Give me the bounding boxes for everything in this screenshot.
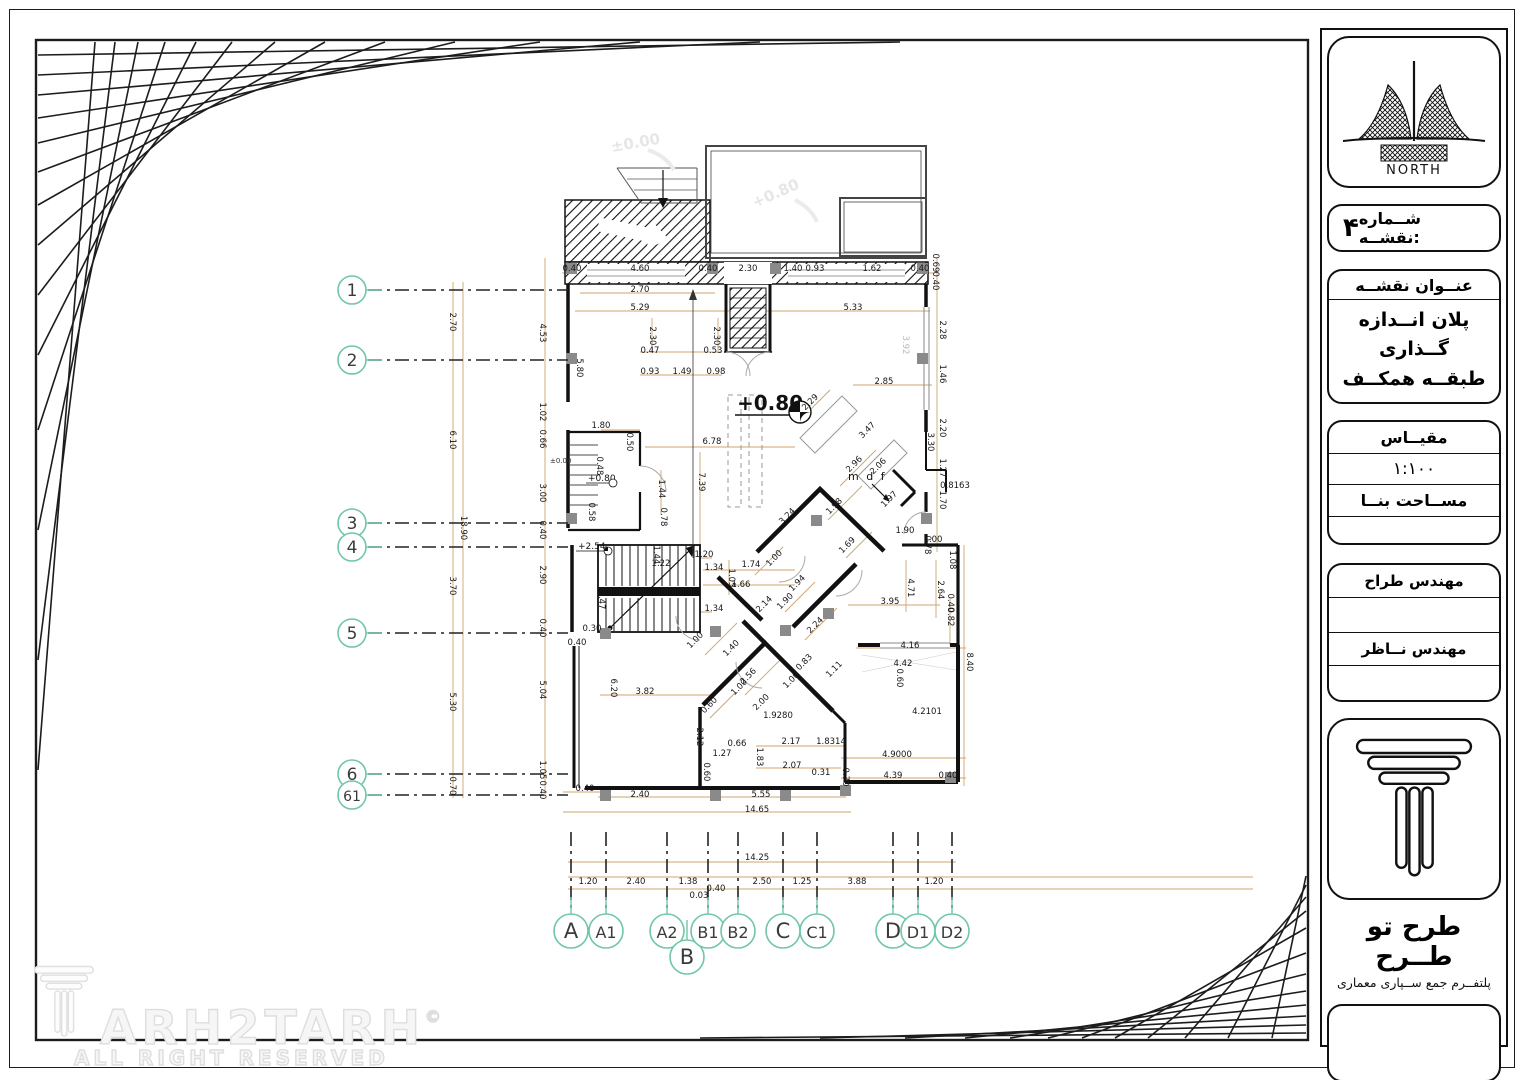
svg-text:B2: B2: [727, 923, 748, 942]
dimension-label: 0.8163: [940, 481, 970, 491]
dimension-label: 0.98: [707, 367, 726, 377]
svg-text:A: A: [564, 919, 579, 943]
scale-value: ۱:۱۰۰: [1329, 454, 1499, 485]
dimension-label: 1.46: [937, 365, 947, 384]
dimension-label: 1.66: [732, 580, 751, 590]
dimension-label: 1.90: [896, 526, 915, 536]
designer-value-empty: [1329, 598, 1499, 633]
dimension-labels: 0.404.600.402.301.400.931.620.400.690.40…: [447, 254, 974, 901]
dimension-label: 0.83: [794, 652, 814, 672]
svg-text:C: C: [776, 919, 791, 943]
courtyard-outline: [706, 146, 926, 258]
supervisor-label: مهندس نــاظر: [1329, 633, 1499, 666]
dimension-label: 1.8314: [816, 737, 846, 747]
dimension-label: 1.62: [863, 264, 882, 274]
level-stair: +2.54: [578, 542, 606, 552]
dimension-label: 0.40: [537, 521, 547, 540]
dimension-label: 4.42: [894, 659, 913, 669]
dimension-label: 0.93: [806, 264, 825, 274]
staircase: [598, 545, 700, 632]
dimension-label: 1.34: [705, 604, 724, 614]
dimension-label: 0.40: [563, 264, 582, 274]
north-indicator: NORTH: [1327, 36, 1501, 188]
grid-axis-A2: A2: [650, 832, 684, 948]
dimension-label: 1.11: [824, 659, 844, 679]
dimension-label: 1.02: [537, 403, 547, 422]
dimension-label: 2.40: [627, 877, 646, 887]
dimension-label: 0.66: [537, 430, 547, 449]
grid-axis-C: C: [766, 832, 800, 948]
dimension-label: 6.78: [703, 437, 722, 447]
dimension-label: 0.70: [447, 777, 457, 796]
dimension-label: 0.78: [658, 508, 668, 527]
dimension-label: 3.47: [857, 420, 877, 440]
dimension-label: 1.80: [592, 421, 611, 431]
dimension-label: 1.44: [656, 480, 666, 499]
dimension-label: 0.53: [704, 346, 723, 356]
dimension-label: 8.40: [964, 653, 974, 672]
dimension-label: 2.30: [739, 264, 758, 274]
dimension-label: 14.65: [745, 805, 769, 815]
dimension-label: 1.74: [742, 560, 761, 570]
svg-text:2: 2: [347, 351, 358, 371]
dimension-label: 5.04: [537, 681, 547, 700]
map-title-label: عنــوان نقشــه: [1329, 271, 1499, 300]
dimension-label: 0.40: [930, 272, 940, 291]
dimension-label: 2.14: [754, 594, 774, 614]
dimension-label: 4.53: [537, 324, 547, 343]
map-title-line2: طبقــه همکــف: [1331, 365, 1497, 394]
grid-axis-D2: D2: [935, 832, 969, 948]
svg-text:D: D: [885, 919, 901, 943]
svg-text:B1: B1: [697, 923, 718, 942]
dimension-label: 2.07: [783, 761, 802, 771]
dimension-label: 0.40: [576, 784, 595, 794]
dimension-label: 0.48: [594, 457, 604, 476]
dimension-label: 0.40: [568, 638, 587, 648]
section-line: [689, 289, 697, 558]
scale-label: مقیــاس: [1329, 422, 1499, 454]
svg-text:B: B: [680, 945, 694, 969]
svg-text:3: 3: [347, 514, 358, 534]
dimension-label: 1.00: [685, 630, 705, 650]
hatched-walls: [565, 200, 928, 348]
map-title-box: عنــوان نقشــه پلان انــدازه گــذاری طبق…: [1327, 269, 1501, 404]
brand-subtitle: پلتفــرم جمع ســپاری معماری: [1327, 975, 1501, 990]
grid-axis-A1: A1: [589, 832, 623, 948]
dimension-label: 3.88: [848, 877, 867, 887]
dimension-label: 1.27: [713, 749, 732, 759]
column-logo-icon: [1344, 730, 1484, 888]
dimension-label: 4.39: [884, 771, 903, 781]
dimension-label: 0.70: [840, 768, 850, 787]
svg-text:5: 5: [347, 624, 358, 644]
dimension-label: 1.94: [787, 573, 807, 593]
north-label: NORTH: [1386, 163, 1442, 178]
grid-axis-B2: B2: [721, 832, 755, 948]
dimension-label: 0.40: [537, 781, 547, 800]
dimension-label: 6.20: [608, 679, 618, 698]
dimension-label: 4.60: [631, 264, 650, 274]
dimension-label: 2.12: [694, 728, 704, 747]
area-value-empty: [1329, 517, 1499, 543]
dimension-label: 1.69: [837, 535, 857, 555]
dimension-label: 1.00: [764, 548, 784, 568]
grid-axis-C1: C1: [800, 832, 834, 948]
dimension-label: 4.16: [901, 641, 920, 651]
dimension-label: 1.44: [651, 546, 661, 565]
dimension-label: 0.40: [537, 619, 547, 638]
dimension-label: 0.47: [641, 346, 660, 356]
dimension-label: 1.40: [784, 264, 803, 274]
svg-text:61: 61: [343, 789, 361, 805]
dimension-label: 5.55: [752, 790, 771, 800]
notes-box-empty: [1327, 1004, 1501, 1080]
dimension-label: 3.70: [447, 577, 457, 596]
dimension-label: 2.28: [937, 321, 947, 340]
dimension-label: 1.47: [596, 591, 606, 610]
dimension-label: 4.71: [905, 579, 915, 598]
dimension-label: 0.31: [812, 768, 831, 778]
dimension-label: 0.66: [728, 739, 747, 749]
dimension-label: 1.08: [947, 551, 957, 570]
scale-box: مقیــاس ۱:۱۰۰ مســاحت بنــا: [1327, 420, 1501, 545]
dimension-label: 1.20: [925, 877, 944, 887]
floor-plan-drawing: +0.80 +2.54 +0.80 ±0.00 ±0.00 +0.80 m d …: [0, 0, 1528, 1080]
dimension-label: 3.82: [636, 687, 655, 697]
dimension-label: 1.34: [705, 563, 724, 573]
north-icon: [1335, 55, 1493, 167]
dimension-label: 2.40: [631, 790, 650, 800]
dimension-label: 0.50: [624, 433, 634, 452]
faint-level-annotation: +0.80: [749, 175, 802, 212]
dimension-label: 0.40: [699, 264, 718, 274]
dimension-label: 0.30: [583, 624, 602, 634]
sheet-number-label: شــماره نقشــه:: [1359, 209, 1485, 247]
dimension-label: 0.40: [939, 771, 958, 781]
dimension-label: 1.90: [775, 591, 795, 611]
dimension-label: 5.80: [574, 359, 584, 378]
sheet-number-box: ۴ شــماره نقشــه:: [1327, 204, 1501, 252]
grid-axis-D1: D1: [901, 832, 935, 948]
dimension-label: 0.40: [945, 594, 955, 613]
dimension-label: 4.9000: [882, 750, 912, 760]
dimension-label: 2.30: [711, 327, 721, 346]
sheet-number-value: ۴: [1343, 213, 1359, 243]
dimension-label: 2.30: [647, 327, 657, 346]
dimension-label: 14.25: [745, 853, 769, 863]
dimension-label: 1.40: [721, 638, 741, 658]
level-zero: ±0.00: [550, 457, 571, 465]
dimension-label: 1.05: [537, 761, 547, 780]
area-label: مســاحت بنــا: [1329, 485, 1499, 517]
dimension-label: 3.30: [925, 433, 935, 452]
dimension-label: 1.00: [781, 670, 801, 690]
engineers-box: مهندس طراح مهندس نــاظر: [1327, 563, 1501, 702]
svg-text:C1: C1: [806, 923, 827, 942]
dimension-label: 0.93: [641, 367, 660, 377]
dimension-label: 7.39: [696, 473, 706, 492]
dimension-label: 2.00: [751, 692, 771, 712]
dimension-label: 2.17: [782, 737, 801, 747]
map-title-line1: پلان انــدازه گــذاری: [1331, 306, 1497, 365]
dimension-label: 1.20: [695, 550, 714, 560]
dimension-label: 6.10: [447, 431, 457, 450]
dimension-label: 0.60: [894, 669, 904, 688]
svg-text:4: 4: [347, 538, 358, 558]
dimension-label: 3.92: [900, 336, 910, 355]
brand-logo-box: [1327, 718, 1501, 900]
dimension-label: 5.30: [447, 693, 457, 712]
dimension-label: 0.58: [586, 503, 596, 522]
supervisor-value-empty: [1329, 666, 1499, 700]
dimension-label: 1.38: [679, 877, 698, 887]
dimension-label: 0.69: [930, 254, 940, 273]
dimension-label: 2.50: [753, 877, 772, 887]
dimension-label: 2.64: [935, 581, 945, 600]
dimension-label: 18.90: [458, 516, 468, 540]
dimension-label: 2.70: [631, 285, 650, 295]
dimension-label: 1.97: [879, 489, 899, 509]
dimension-label: 2.85: [875, 377, 894, 387]
dimension-label: 2.24: [805, 615, 825, 635]
designer-label: مهندس طراح: [1329, 565, 1499, 598]
svg-text:A1: A1: [595, 923, 616, 942]
dimension-label: 1.27: [937, 459, 947, 478]
dimension-label: 1.83: [754, 748, 764, 767]
dimension-label: 0.60: [701, 763, 711, 782]
dimension-label: 1.00: [924, 535, 943, 545]
dimension-label: 1.70: [937, 491, 947, 510]
dimension-label: 1.25: [793, 877, 812, 887]
dimension-label: 2.20: [937, 419, 947, 438]
dimension-label: 2.90: [537, 566, 547, 585]
dimension-label: 0.60: [699, 695, 719, 715]
title-block: NORTH ۴ شــماره نقشــه: عنــوان نقشــه پ…: [1320, 28, 1508, 1047]
dimension-label: 3.00: [537, 484, 547, 503]
dimension-label: 1.20: [579, 877, 598, 887]
svg-text:D1: D1: [907, 923, 930, 942]
brand-name: طرح تو طــرح: [1327, 912, 1501, 972]
svg-text:1: 1: [347, 281, 358, 301]
drawing-sheet: +0.80 +2.54 +0.80 ±0.00 ±0.00 +0.80 m d …: [0, 0, 1528, 1080]
svg-text:A2: A2: [656, 923, 677, 942]
svg-text:D2: D2: [941, 923, 964, 942]
dimension-label: 3.95: [881, 597, 900, 607]
dimension-label: 5.33: [844, 303, 863, 313]
dimension-label: 1.49: [673, 367, 692, 377]
dimension-label: 1.9280: [763, 711, 793, 721]
dimension-label: 2.70: [447, 313, 457, 332]
dimension-label: 0.40: [707, 884, 726, 894]
dimension-label: 0.40: [911, 264, 930, 274]
grid-axis-A: A: [554, 832, 588, 948]
dimension-label: 4.2101: [912, 707, 942, 717]
dimension-label: 5.29: [631, 303, 650, 313]
